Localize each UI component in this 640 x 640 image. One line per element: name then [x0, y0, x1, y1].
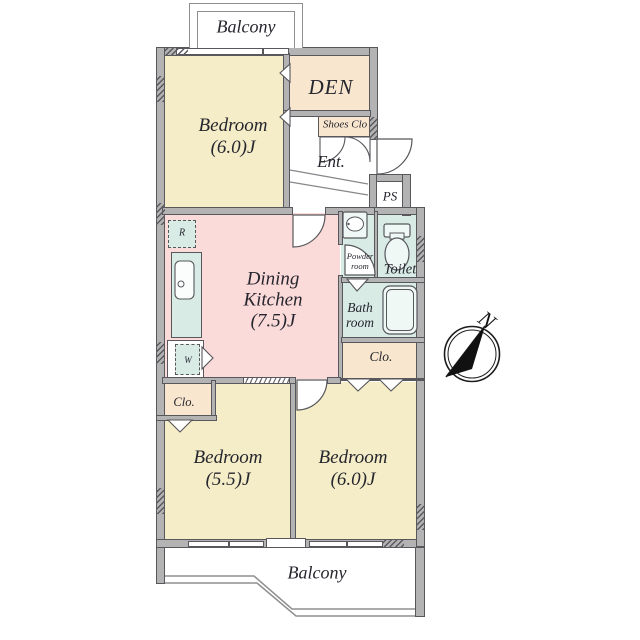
bathroom-label: Bath room	[346, 300, 374, 330]
closet-door-mark	[379, 379, 404, 391]
dining-kitchen-label: Dining Kitchen (7.5)J	[243, 269, 302, 332]
bathroom-door-mark	[347, 279, 368, 291]
washer-label: W	[184, 355, 192, 365]
closet-door-mark	[168, 420, 192, 432]
shoes-closet-label: Shoes Clo	[323, 119, 367, 132]
entrance-label: Ent.	[317, 152, 345, 172]
balcony-bottom-label: Balcony	[288, 563, 347, 584]
room-size: (5.5)J	[194, 469, 263, 491]
balcony-bottom-rail	[165, 583, 415, 616]
shoes-closet-door-arc	[345, 137, 370, 162]
bedroom-right-label: Bedroom (6.0)J	[319, 447, 388, 491]
partition-door-mark	[280, 64, 290, 82]
room-name: Bath	[346, 300, 374, 315]
room-size: (6.0)J	[319, 469, 388, 491]
powder-room-label: Powder room	[347, 251, 373, 271]
room-name: Dining	[243, 269, 302, 290]
washer-door-mark	[202, 347, 213, 369]
closet-door-mark	[346, 379, 371, 391]
powder-sink-icon	[343, 212, 367, 238]
kitchen-sink-icon	[175, 261, 194, 299]
floor-plan: Balcony Bedroom (6.0)J DEN Shoes Clo Ent…	[0, 0, 640, 640]
bathtub-icon	[383, 286, 417, 334]
compass-north-icon	[445, 326, 500, 382]
closet-right-label: Clo.	[370, 349, 393, 365]
entrance-step-line	[290, 182, 368, 195]
room-name: Bedroom	[194, 447, 263, 469]
balcony-top-label: Balcony	[217, 17, 276, 38]
room-name: room	[347, 261, 373, 271]
room-name: Bedroom	[319, 447, 388, 469]
bedroom-door-arc	[297, 380, 327, 410]
entrance-step-line	[290, 170, 368, 184]
room-size: (7.5)J	[243, 311, 302, 332]
kitchen-door-arc	[293, 215, 325, 247]
bedroom-top-label: Bedroom (6.0)J	[199, 115, 268, 159]
den-label: DEN	[309, 75, 354, 99]
refrigerator-label: R	[179, 227, 185, 239]
partition-door-mark	[280, 108, 290, 126]
bedroom-left-label: Bedroom (5.5)J	[194, 447, 263, 491]
room-name: Bedroom	[199, 115, 268, 137]
room-name: Kitchen	[243, 290, 302, 311]
room-size: (6.0)J	[199, 137, 268, 159]
closet-left-label: Clo.	[173, 395, 194, 409]
toilet-label: Toilet	[384, 262, 417, 279]
room-name: Powder	[347, 251, 373, 261]
entrance-door-arc	[377, 139, 412, 174]
pipe-shaft-label: PS	[383, 190, 397, 205]
room-name: room	[346, 315, 374, 330]
